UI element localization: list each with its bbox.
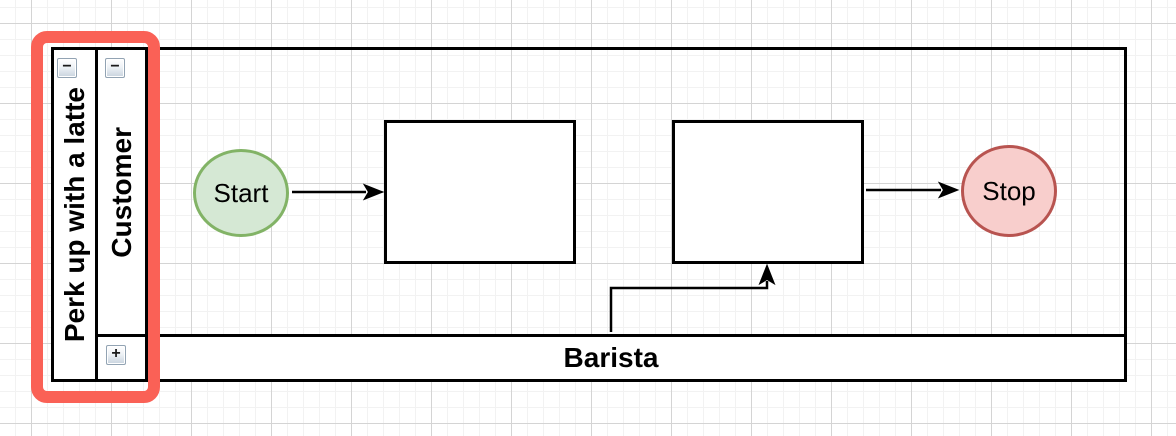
diagram-canvas[interactable]: Perk up with a latte Customer Barista − … xyxy=(0,0,1176,436)
minus-icon: − xyxy=(62,59,71,75)
start-node-label: Start xyxy=(214,178,269,209)
task-node-2[interactable] xyxy=(672,120,864,264)
lane-barista-expand-button[interactable]: + xyxy=(106,345,126,365)
lane-header-customer[interactable]: Customer xyxy=(98,50,148,334)
lane-customer-collapse-button[interactable]: − xyxy=(105,58,125,78)
lane-customer-title: Customer xyxy=(108,127,136,258)
stop-node-label: Stop xyxy=(982,176,1036,207)
lane-barista-collapsed[interactable]: Barista xyxy=(98,334,1124,379)
start-event-node[interactable]: Start xyxy=(193,149,289,237)
pool-title: Perk up with a latte xyxy=(61,87,89,342)
pool-title-header[interactable]: Perk up with a latte xyxy=(54,50,98,379)
lane-barista-title: Barista xyxy=(98,337,1124,379)
minus-icon: − xyxy=(110,59,119,75)
plus-icon: + xyxy=(111,346,120,362)
pool-collapse-button[interactable]: − xyxy=(57,58,77,78)
stop-event-node[interactable]: Stop xyxy=(961,145,1057,237)
task-node-1[interactable] xyxy=(384,120,576,264)
